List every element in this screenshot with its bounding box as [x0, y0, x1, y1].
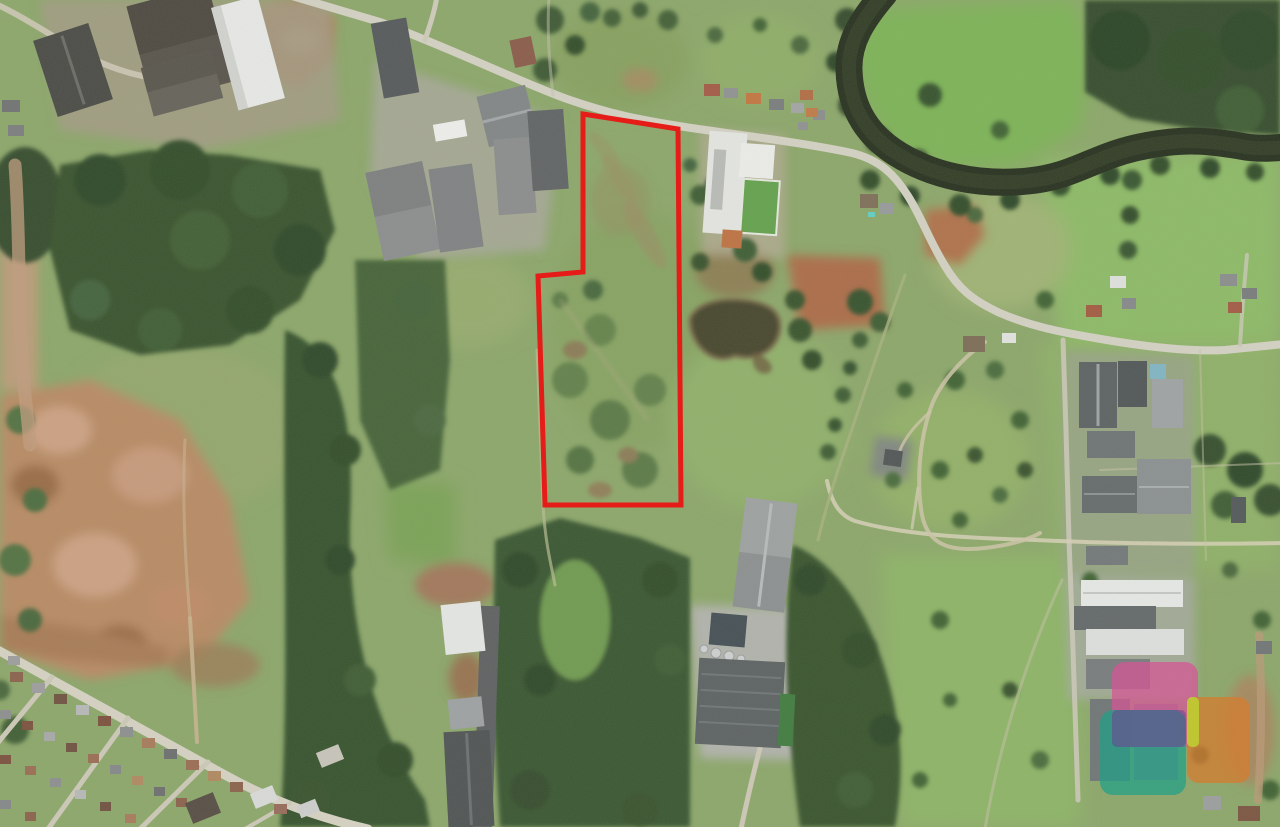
satellite-scene: [0, 0, 1280, 827]
watermark-purple-overlap: [1112, 710, 1186, 747]
satellite-image: [0, 0, 1280, 827]
watermark-yellow-bar: [1187, 697, 1199, 747]
